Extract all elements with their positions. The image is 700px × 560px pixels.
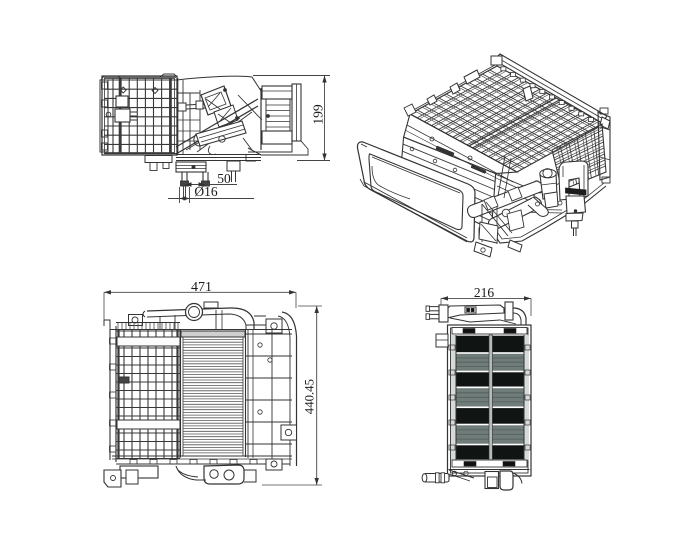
svg-text:199: 199 bbox=[311, 104, 326, 125]
svg-text:440.45: 440.45 bbox=[303, 379, 317, 414]
svg-text:216: 216 bbox=[474, 285, 495, 300]
svg-text:471: 471 bbox=[191, 280, 212, 295]
svg-text:50: 50 bbox=[217, 171, 231, 186]
svg-text:Ø16: Ø16 bbox=[194, 184, 217, 199]
